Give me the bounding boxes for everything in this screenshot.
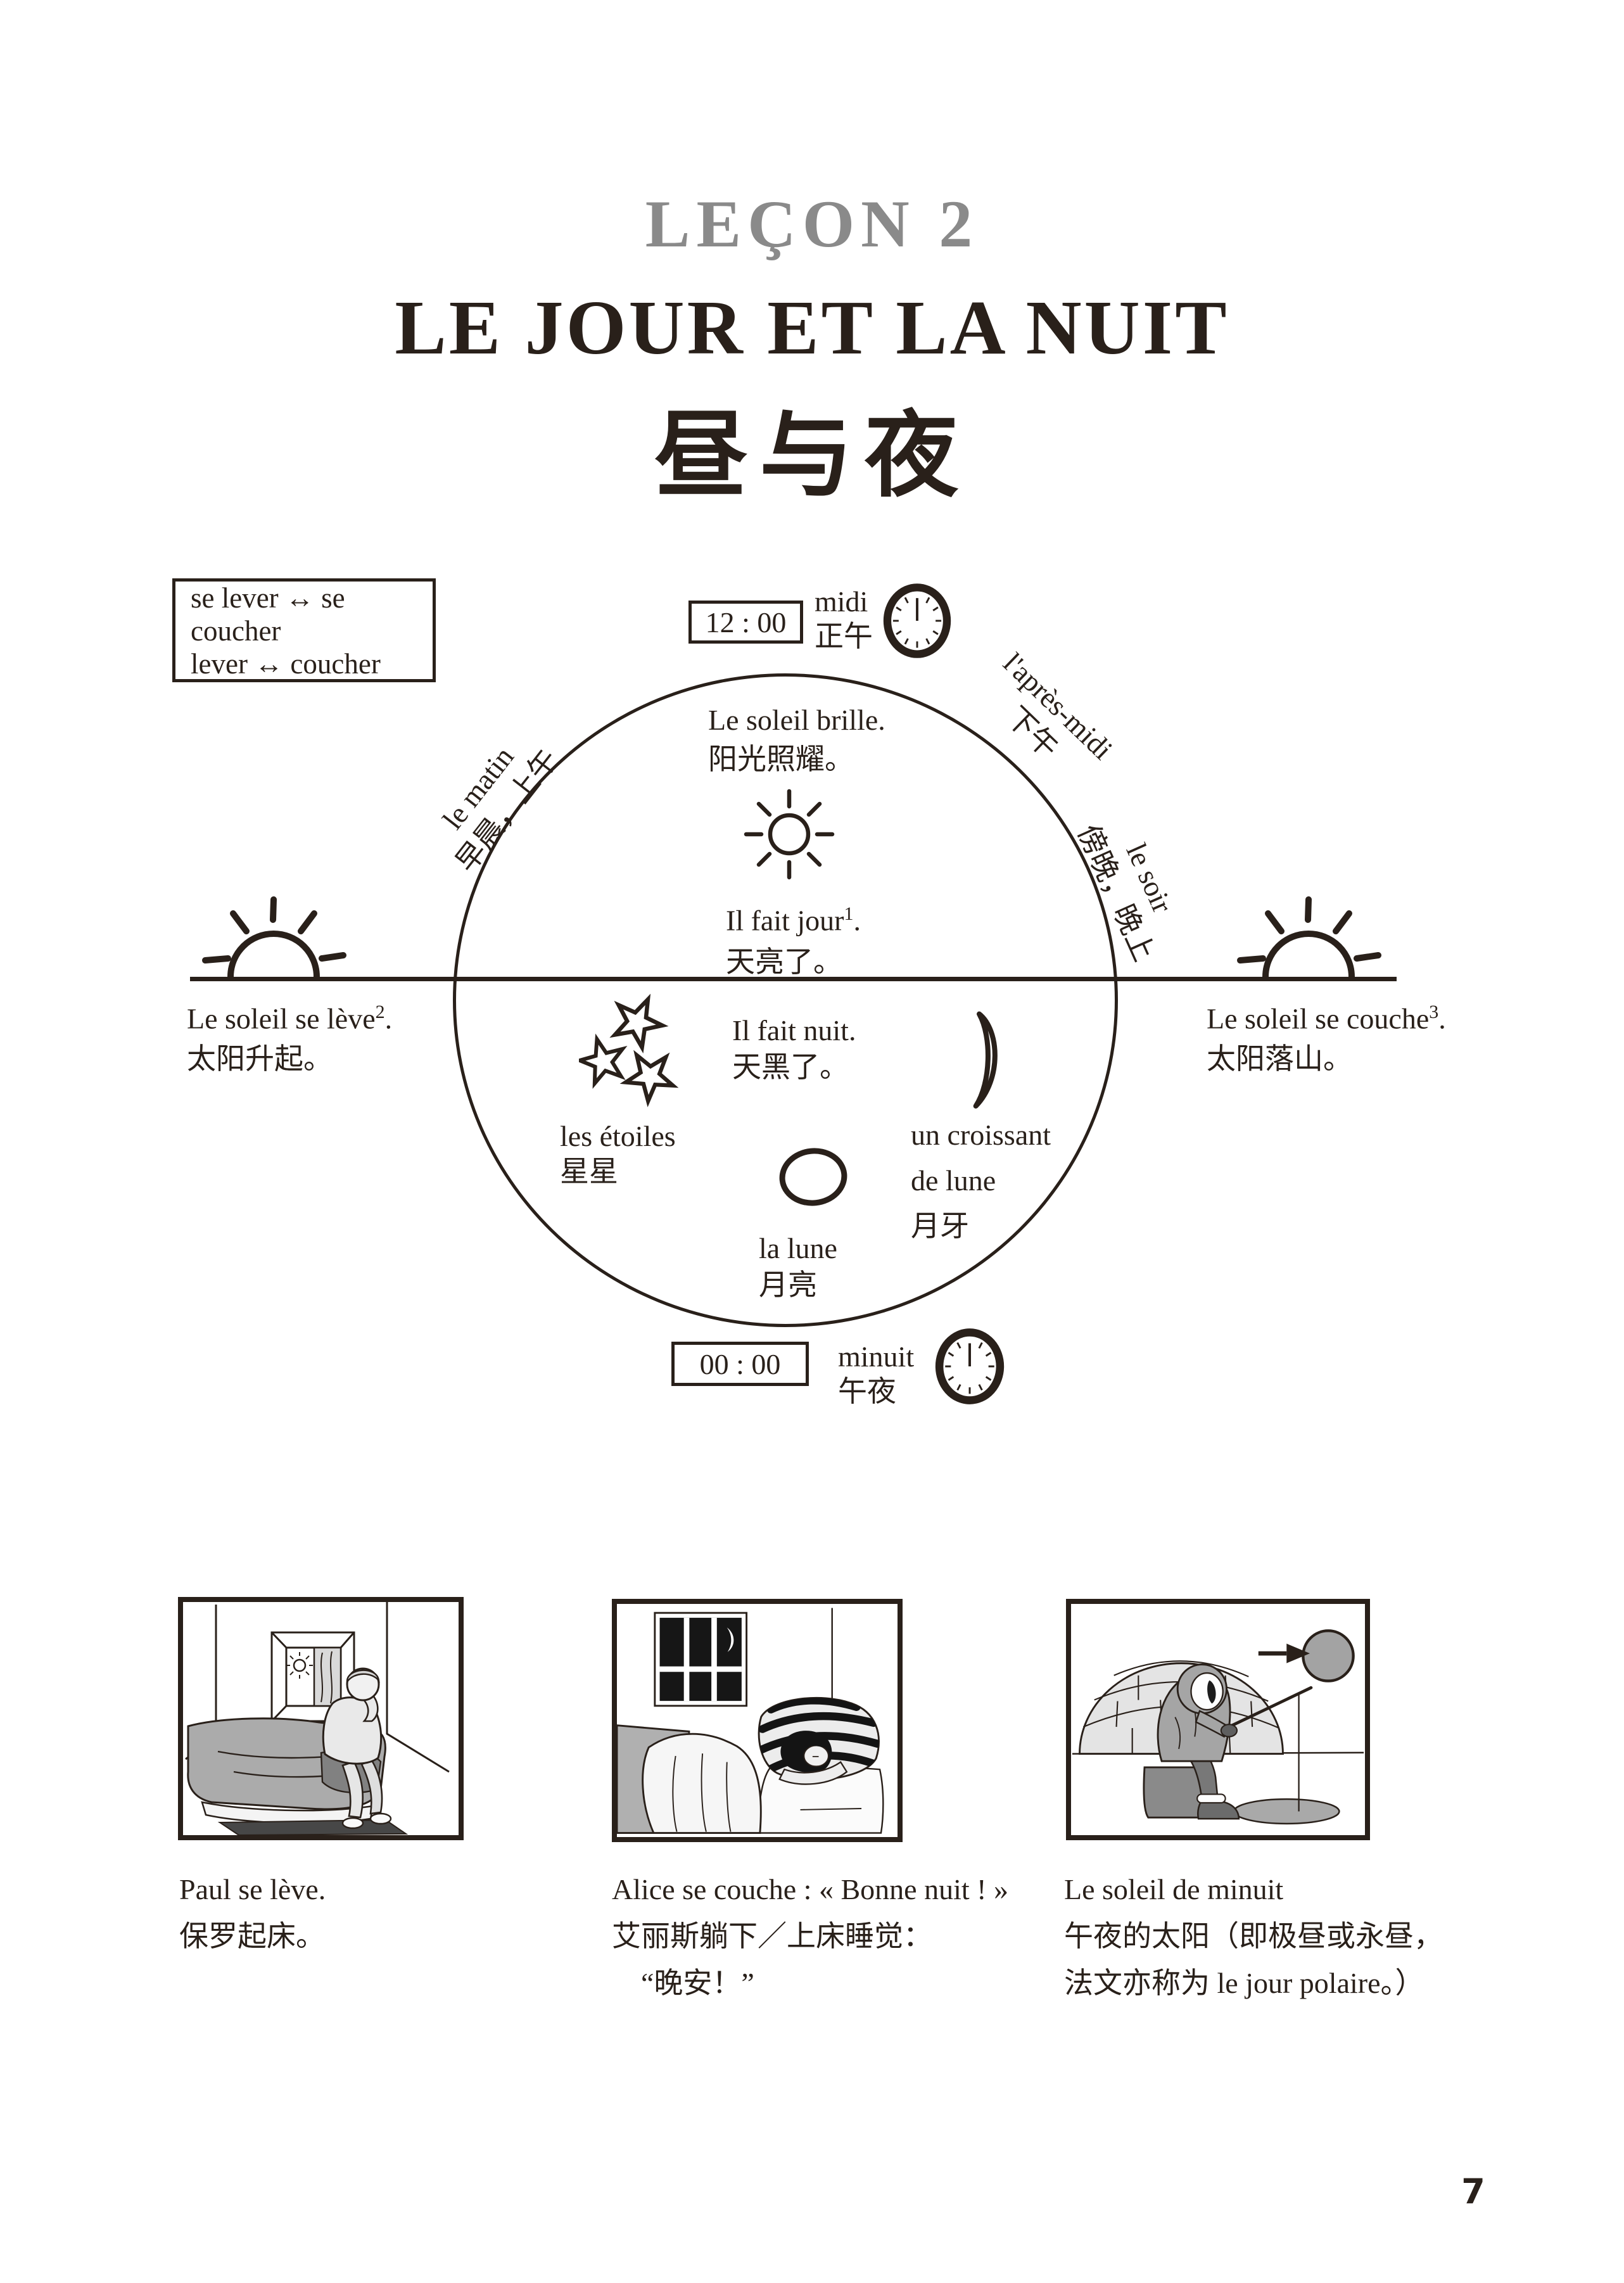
vocab-box: se lever ↔ se coucher lever ↔ coucher xyxy=(172,578,436,682)
crescent-fr-2: de lune xyxy=(911,1158,1051,1204)
sunset-label: Le soleil se couche3. 太阳落山。 xyxy=(1207,992,1446,1079)
sunset-fr: Le soleil se couche3. xyxy=(1207,992,1446,1039)
sunrise-zh: 太阳升起。 xyxy=(187,1039,392,1079)
midnight-label-fr: minuit xyxy=(838,1339,914,1374)
stars-zh: 星星 xyxy=(560,1154,676,1190)
footnote-3-marker: 3 xyxy=(1429,1002,1438,1022)
noon-clock-icon xyxy=(882,583,953,659)
alice-caption-fr: Alice se couche : « Bonne nuit ! » xyxy=(612,1866,1008,1913)
vocab-line-2: lever ↔ coucher xyxy=(191,647,433,680)
midnight-label-zh: 午夜 xyxy=(838,1374,914,1409)
alice-illustration xyxy=(612,1599,903,1842)
paul-caption-zh: 保罗起床。 xyxy=(179,1913,326,1960)
vocab-line-1: se lever ↔ se coucher xyxy=(191,582,433,647)
midnight-sun-caption-zh-1: 午夜的太阳（即极昼或永昼， xyxy=(1064,1913,1443,1960)
full-moon-icon xyxy=(775,1145,851,1212)
midnight-sun-caption: Le soleil de minuit 午夜的太阳（即极昼或永昼， 法文亦称为 … xyxy=(1064,1866,1443,2007)
noon-time-box: 12 : 00 xyxy=(688,601,803,644)
sunrise-label: Le soleil se lève2. 太阳升起。 xyxy=(187,992,392,1079)
noon-label-zh: 正午 xyxy=(815,619,873,654)
crescent-label: un croissant de lune 月牙 xyxy=(911,1112,1051,1249)
crescent-fr-1: un croissant xyxy=(911,1112,1051,1158)
moon-label: la lune 月亮 xyxy=(759,1230,837,1304)
daylight-label: Il fait jour1. 天亮了。 xyxy=(726,893,861,983)
paul-caption: Paul se lève. 保罗起床。 xyxy=(179,1866,326,1960)
stars-fr: les étoiles xyxy=(560,1119,676,1154)
paul-caption-fr: Paul se lève. xyxy=(179,1866,326,1913)
stars-icon xyxy=(579,991,687,1111)
page-number: 7 xyxy=(1454,2172,1492,2211)
crescent-moon-icon xyxy=(961,1010,1012,1114)
noon-label: midi 正午 xyxy=(815,584,873,654)
paul-illustration xyxy=(178,1597,464,1840)
sunset-icon xyxy=(1235,889,1382,981)
alice-caption-zh-2: “晚安！” xyxy=(612,1960,1008,2007)
footnote-1-marker: 1 xyxy=(844,903,854,924)
lesson-number-title: LEÇON 2 xyxy=(0,186,1624,263)
nightfall-fr: Il fait nuit. xyxy=(732,1012,856,1049)
noon-label-fr: midi xyxy=(815,584,873,619)
sunrise-fr: Le soleil se lève2. xyxy=(187,992,392,1039)
daylight-fr: Il fait jour1. xyxy=(726,893,861,941)
nightfall-label: Il fait nuit. 天黑了。 xyxy=(732,1012,856,1086)
midnight-clock-icon xyxy=(934,1328,1006,1405)
page-title-chinese: 昼与夜 xyxy=(0,379,1624,515)
nightfall-zh: 天黑了。 xyxy=(732,1049,856,1086)
stars-label: les étoiles 星星 xyxy=(560,1119,676,1190)
moon-fr: la lune xyxy=(759,1230,837,1267)
midnight-label: minuit 午夜 xyxy=(838,1339,914,1409)
shining-sun-icon xyxy=(739,773,842,885)
sunset-zh: 太阳落山。 xyxy=(1207,1039,1446,1079)
moon-zh: 月亮 xyxy=(759,1267,837,1304)
sunrise-icon xyxy=(200,889,347,981)
alice-caption: Alice se couche : « Bonne nuit ! » 艾丽斯躺下… xyxy=(612,1866,1008,2007)
textbook-page: LEÇON 2 LE JOUR ET LA NUIT 昼与夜 se lever … xyxy=(0,0,1624,2283)
sun-shines-fr: Le soleil brille. xyxy=(708,701,885,740)
midnight-sun-illustration xyxy=(1066,1599,1370,1840)
alice-caption-zh-1: 艾丽斯躺下／上床睡觉： xyxy=(612,1913,1008,1960)
footnote-2-marker: 2 xyxy=(376,1002,385,1022)
sun-shines-label: Le soleil brille. 阳光照耀。 xyxy=(708,701,885,779)
midnight-time-box: 00 : 00 xyxy=(671,1342,809,1386)
midnight-sun-caption-fr: Le soleil de minuit xyxy=(1064,1866,1443,1913)
page-title: LE JOUR ET LA NUIT xyxy=(0,284,1624,372)
daylight-zh: 天亮了。 xyxy=(726,941,861,983)
crescent-zh: 月牙 xyxy=(911,1204,1051,1249)
midnight-sun-caption-zh-2: 法文亦称为 le jour polaire。） xyxy=(1064,1960,1443,2007)
